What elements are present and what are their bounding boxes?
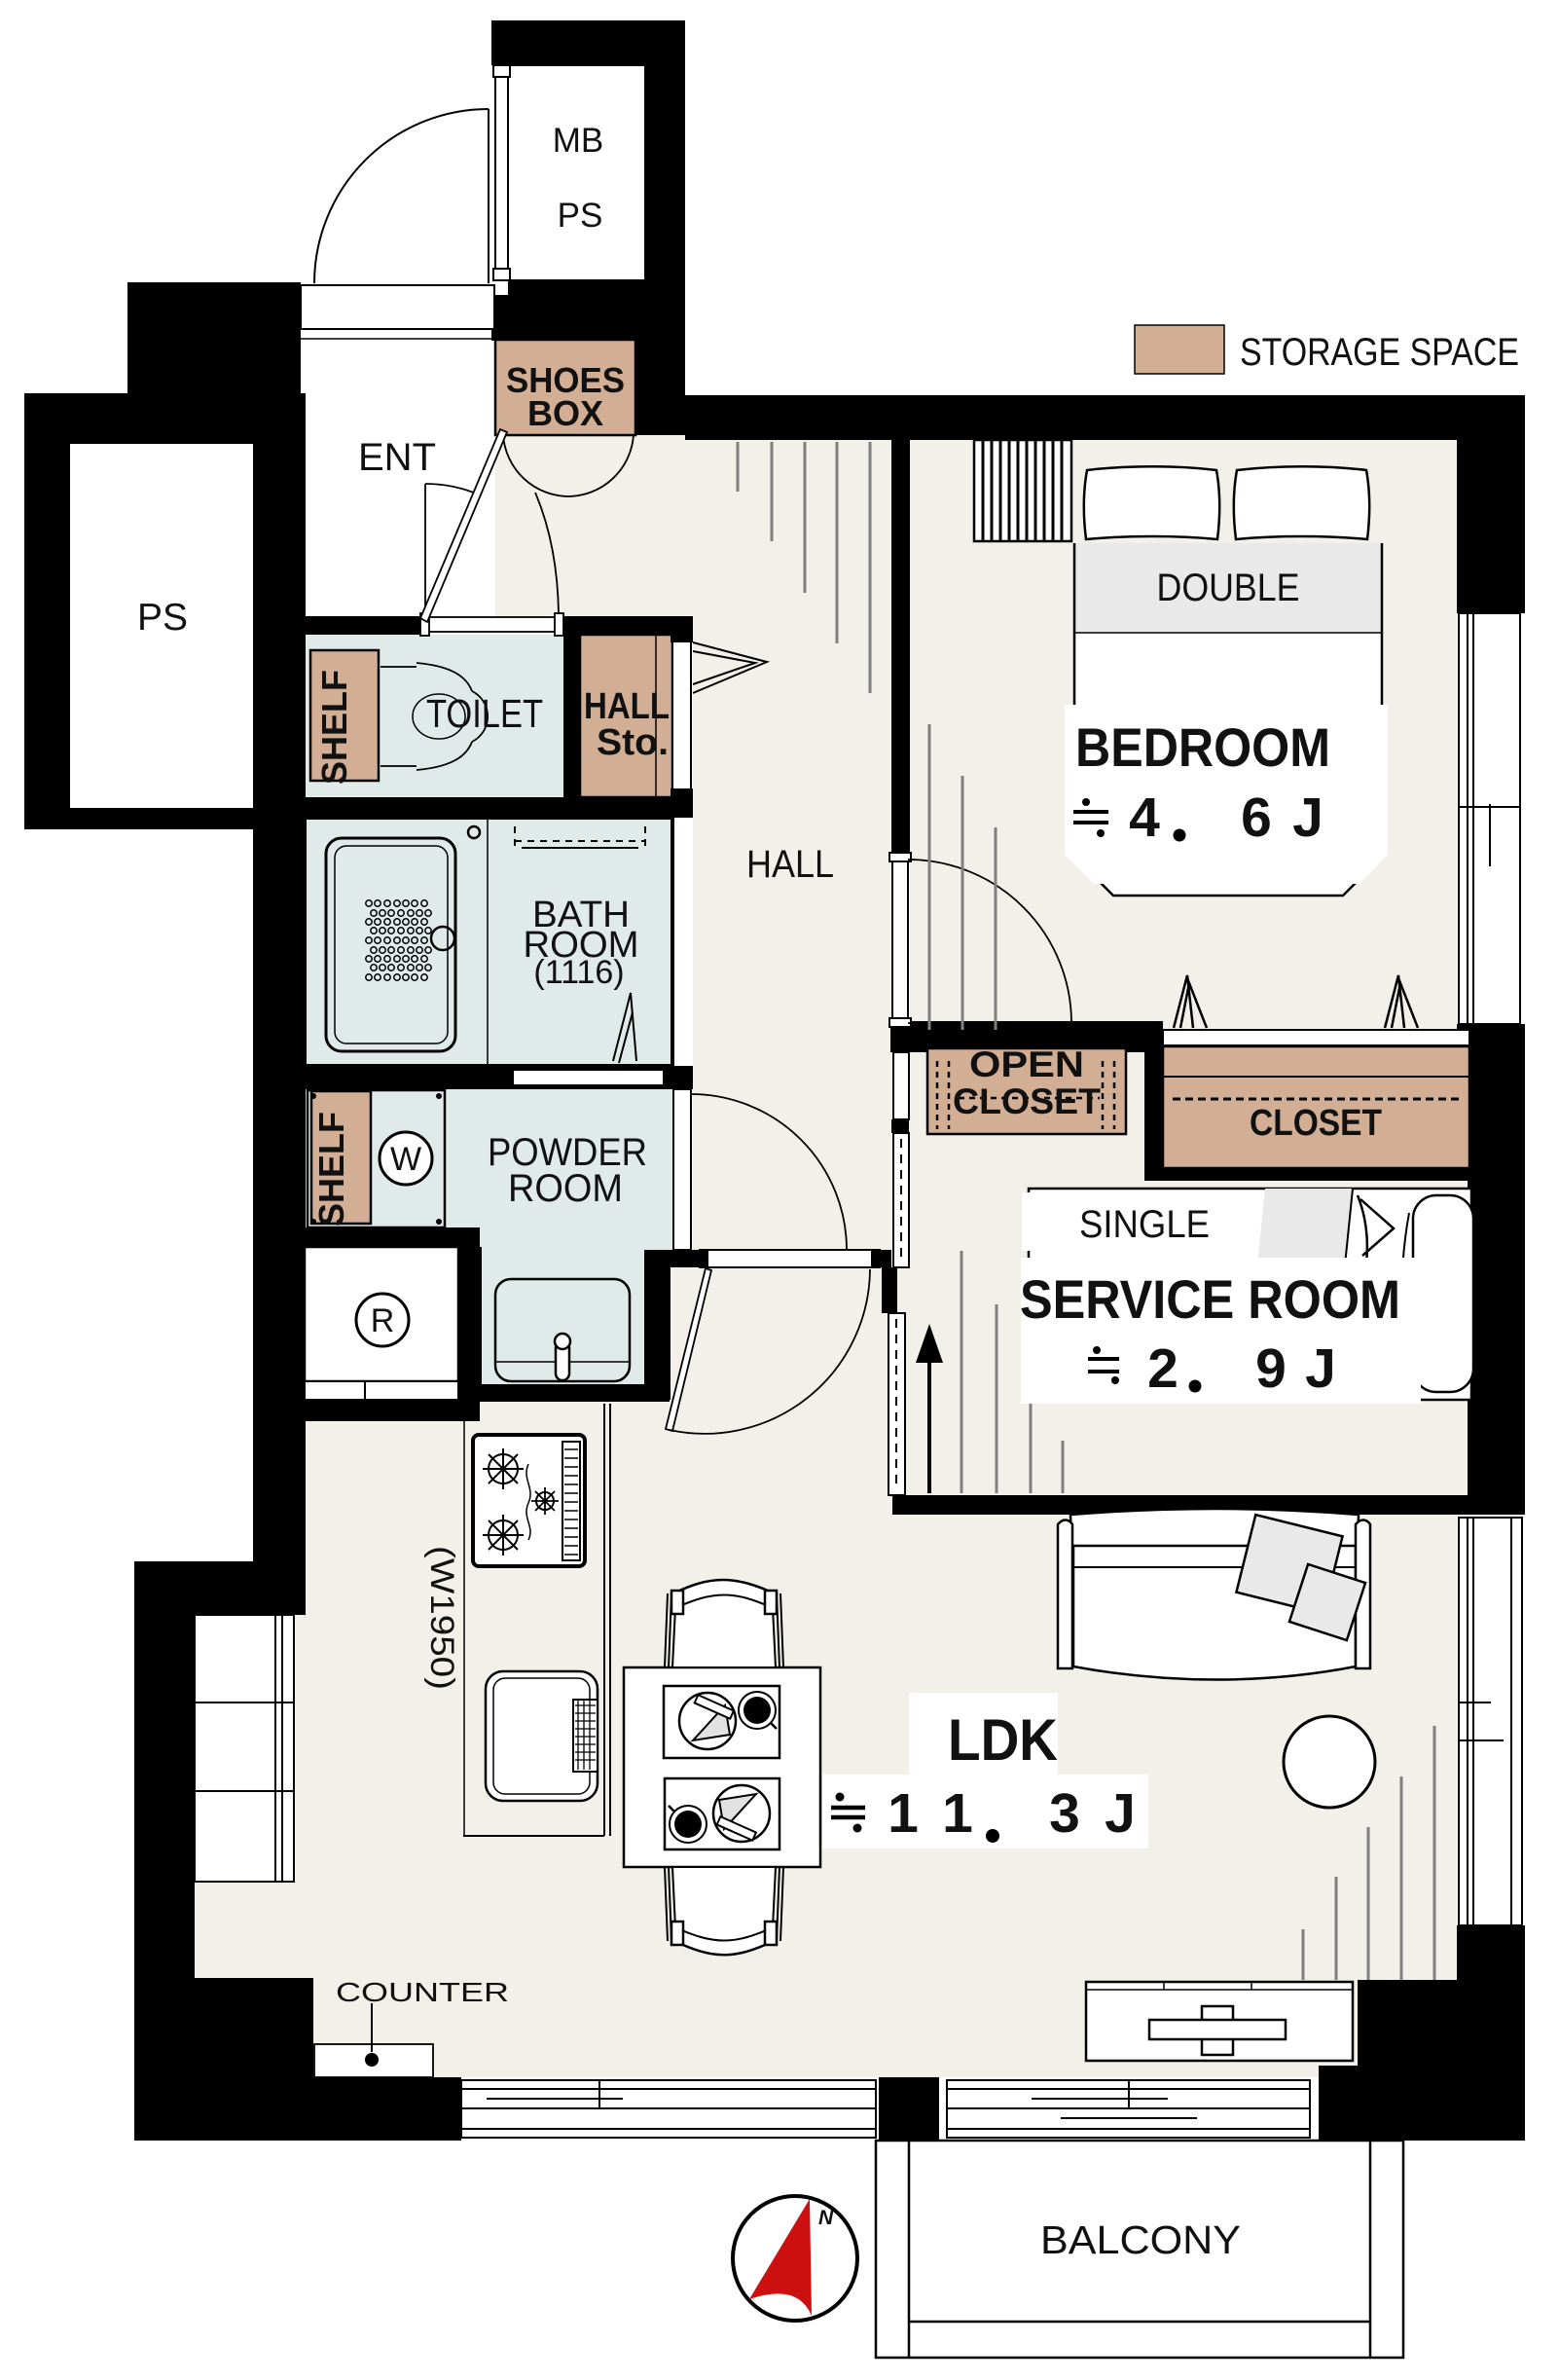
svg-text:Sto.: Sto.: [597, 722, 669, 763]
svg-text:ENT: ENT: [358, 436, 436, 479]
svg-text:SINGLE: SINGLE: [1079, 1203, 1210, 1246]
svg-text:PS: PS: [137, 597, 188, 639]
svg-text:ROOM: ROOM: [508, 1167, 623, 1210]
svg-text:J: J: [1105, 1782, 1136, 1845]
svg-text:LDK: LDK: [948, 1707, 1058, 1773]
svg-text:MB: MB: [553, 122, 604, 160]
svg-text:SHELF: SHELF: [311, 1112, 351, 1227]
svg-text:6: 6: [1241, 787, 1272, 849]
svg-text:CLOSET: CLOSET: [953, 1081, 1101, 1121]
svg-text:J: J: [1305, 1337, 1336, 1400]
svg-text:BALCONY: BALCONY: [1040, 2217, 1241, 2262]
svg-text:HALL: HALL: [746, 843, 834, 886]
svg-text:9: 9: [1255, 1337, 1287, 1400]
svg-text:STORAGE SPACE: STORAGE SPACE: [1240, 331, 1519, 374]
svg-text:COUNTER: COUNTER: [336, 1977, 509, 2007]
svg-text:3: 3: [1049, 1782, 1080, 1845]
svg-text:BEDROOM: BEDROOM: [1075, 716, 1330, 778]
svg-text:(W1950): (W1950): [423, 1546, 460, 1690]
svg-text:(1116): (1116): [533, 954, 624, 991]
svg-text:J: J: [1292, 787, 1323, 849]
svg-text:W: W: [390, 1141, 421, 1178]
svg-text:2: 2: [1147, 1337, 1178, 1400]
svg-text:SERVICE ROOM: SERVICE ROOM: [1020, 1268, 1400, 1330]
svg-text:HALL: HALL: [584, 686, 670, 727]
svg-text:CLOSET: CLOSET: [1250, 1103, 1382, 1144]
svg-text:1: 1: [888, 1782, 919, 1845]
svg-text:1: 1: [942, 1782, 973, 1845]
svg-text:R: R: [371, 1302, 395, 1339]
svg-text:4: 4: [1129, 787, 1160, 849]
svg-text:TOILET: TOILET: [426, 691, 543, 736]
svg-text:OPEN: OPEN: [969, 1044, 1084, 1084]
svg-text:PS: PS: [558, 197, 603, 235]
svg-text:N: N: [818, 2207, 834, 2229]
svg-text:DOUBLE: DOUBLE: [1157, 567, 1300, 609]
svg-text:SHELF: SHELF: [314, 670, 354, 785]
svg-text:BOX: BOX: [527, 393, 603, 433]
